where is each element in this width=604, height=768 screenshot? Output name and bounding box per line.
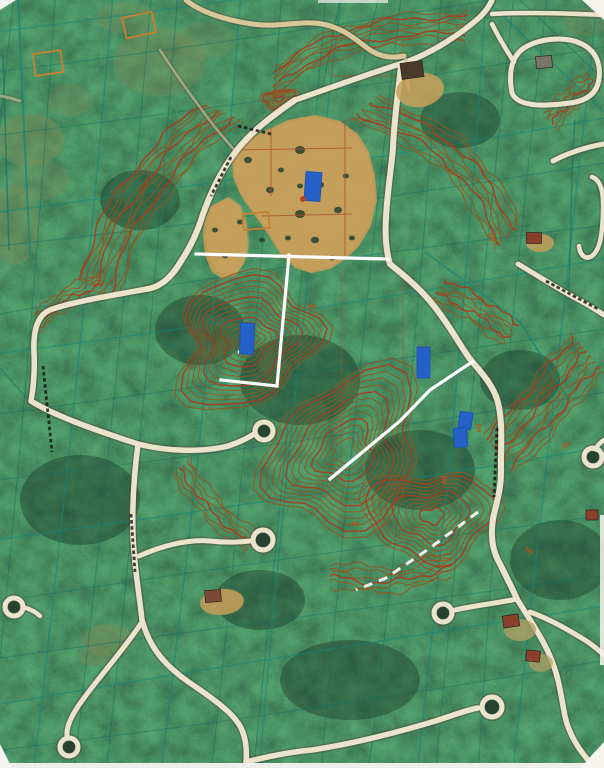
elevation-tick	[477, 427, 481, 429]
field-bush	[334, 207, 342, 213]
blue-structure-marker	[453, 427, 468, 447]
field-bush	[212, 228, 218, 233]
cul-de-sac-island	[63, 741, 75, 753]
field-bush	[266, 187, 274, 193]
scan-edge	[318, 0, 388, 3]
field-bush	[295, 210, 305, 218]
elevation-tick	[477, 424, 481, 426]
field-bush	[343, 174, 349, 179]
blue-structure-marker	[417, 347, 430, 378]
elevation-tick	[477, 430, 481, 432]
blue-structure-marker	[304, 171, 322, 201]
road	[492, 13, 604, 15]
aerial-parcel-map	[0, 0, 604, 768]
scan-edge	[600, 515, 604, 665]
blue-structure-marker	[458, 411, 473, 430]
cul-de-sac-island	[256, 533, 270, 547]
house-roof	[526, 650, 541, 662]
house-roof	[400, 61, 424, 80]
cul-de-sac-island	[485, 700, 499, 714]
field-bush	[285, 236, 291, 241]
house-roof	[536, 55, 553, 68]
field-bush	[244, 157, 252, 163]
cul-de-sac-island	[437, 607, 449, 619]
red-marker-dot	[300, 196, 306, 202]
field-bush	[311, 237, 319, 243]
house-roof	[205, 589, 222, 602]
cul-de-sac-island	[258, 425, 270, 437]
blue-structure-marker	[239, 323, 254, 354]
elevation-label-marks	[477, 424, 481, 432]
field-bush	[349, 236, 355, 241]
field-bush	[278, 168, 284, 173]
teal-photo-cast	[0, 0, 604, 768]
scan-edge	[0, 763, 604, 768]
forest-background	[0, 0, 604, 768]
house-roof	[586, 510, 598, 520]
house-roof	[502, 614, 520, 628]
field-bush	[297, 184, 303, 189]
field-bush	[259, 238, 265, 243]
cul-de-sac-island	[8, 601, 20, 613]
elevation-label-marks	[442, 476, 447, 484]
listing-map-photo	[0, 0, 604, 768]
cul-de-sac-island	[587, 451, 599, 463]
house-roof	[527, 233, 542, 244]
field-bush	[295, 146, 305, 154]
